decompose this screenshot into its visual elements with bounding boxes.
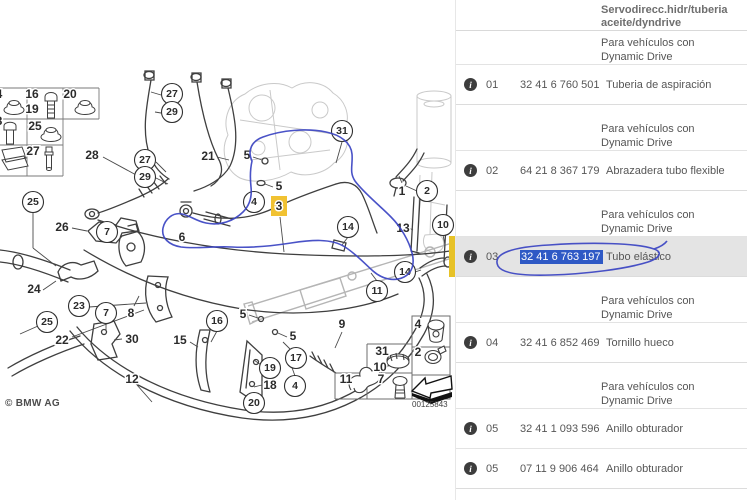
svg-text:29: 29 [139,171,151,183]
svg-text:20: 20 [63,87,77,101]
callout-25: 25 [28,119,42,133]
svg-text:19: 19 [25,102,39,116]
callout-4: 4 [415,317,422,331]
callout-8[interactable]: 8 [128,306,135,320]
svg-text:11: 11 [371,285,382,297]
part-description: Anillo obturador [606,463,747,475]
callout-26[interactable]: 26 [55,220,69,234]
callout-24[interactable]: 24 [27,282,41,296]
part-description: Tubo elástico [606,251,747,263]
callout-1[interactable]: 1 [399,184,406,198]
callout-16: 16 [25,87,39,101]
bmw-copyright: © BMW AG [5,398,60,409]
svg-text:11: 11 [340,372,353,386]
svg-text:15: 15 [173,333,187,347]
svg-text:24: 24 [27,282,41,296]
svg-text:27: 27 [166,88,178,100]
svg-text:8: 8 [128,306,135,320]
svg-text:5: 5 [290,329,297,343]
svg-text:3: 3 [276,199,283,213]
svg-text:25: 25 [41,316,53,328]
svg-text:17: 17 [290,352,302,364]
position-number: 04 [478,337,520,349]
svg-text:18: 18 [263,378,277,392]
info-icon[interactable]: i [464,422,477,435]
part-description: Abrazadera tubo flexible [606,165,747,177]
availability-note: Para vehículos conDynamic Drive [456,289,747,323]
info-icon[interactable]: i [464,250,477,263]
part-row[interactable]: i0507 11 9 906 464Anillo obturador [456,448,747,488]
svg-text:8: 8 [0,114,3,128]
svg-text:19: 19 [264,362,276,374]
parts-table: Servodirecc.hidr/tuberia aceite/dyndrive… [455,0,747,500]
position-number: 05 [478,463,520,475]
svg-text:12: 12 [125,372,139,386]
parts-catalog-page: 2729272931282155431226762514131024232522… [0,0,747,500]
callout-2[interactable]: 2 [417,181,438,202]
part-number[interactable]: 32 41 6 760 501 [520,79,606,91]
svg-text:7: 7 [378,372,385,386]
svg-text:23: 23 [73,300,85,312]
part-description: Anillo obturador [606,423,747,435]
parts-grid-icons [2,93,95,171]
position-number: 02 [478,165,520,177]
svg-text:28: 28 [85,148,99,162]
callout-16[interactable]: 16 [207,311,228,332]
part-number[interactable]: 32 41 6 763 197 [520,251,606,263]
info-icon[interactable]: i [464,164,477,177]
callout-17[interactable]: 17 [286,348,307,369]
callout-31: 31 [375,344,389,358]
svg-text:10: 10 [437,219,449,231]
svg-text:25: 25 [27,196,39,208]
svg-text:29: 29 [166,106,178,118]
callout-21[interactable]: 21 [201,149,215,163]
part-number[interactable]: 64 21 8 367 179 [520,165,606,177]
position-number: 03 [478,251,520,263]
callout-22[interactable]: 22 [55,333,69,347]
callout-3[interactable]: 3 [271,196,287,216]
callout-5[interactable]: 5 [240,307,247,321]
callout-12[interactable]: 12 [125,372,139,386]
part-number[interactable]: 07 11 9 906 464 [520,463,606,475]
part-row[interactable]: i0332 41 6 763 197Tubo elástico [456,237,747,276]
callout-20: 20 [63,87,77,101]
callout-5[interactable]: 5 [276,179,283,193]
position-number: 05 [478,423,520,435]
svg-text:2: 2 [415,345,422,359]
svg-text:5: 5 [240,307,247,321]
part-description: Tuberia de aspiración [606,79,747,91]
availability-note: Para vehículos conDynamic Drive [456,375,747,409]
part-description: Tornillo hueco [606,337,747,349]
diagram-canvas: 2729272931282155431226762514131024232522… [0,0,455,500]
svg-text:4: 4 [0,87,3,101]
callout-25[interactable]: 25 [23,192,44,213]
part-row[interactable]: i0264 21 8 367 179Abrazadera tubo flexib… [456,151,747,190]
part-row[interactable]: i0432 41 6 852 469Tornillo hueco [456,323,747,362]
svg-text:6: 6 [179,230,186,244]
svg-text:7: 7 [104,226,110,238]
svg-text:27: 27 [139,154,151,166]
svg-text:21: 21 [201,149,215,163]
part-number[interactable]: 32 41 1 093 596 [520,423,606,435]
svg-text:16: 16 [211,315,223,327]
svg-text:16: 16 [25,87,39,101]
svg-text:4: 4 [292,380,298,392]
callout-27: 27 [26,144,40,158]
callout-29[interactable]: 29 [135,167,156,188]
position-number: 01 [478,79,520,91]
svg-text:25: 25 [28,119,42,133]
parts-section: Para vehículos conDynamic Drivei0432 41 … [456,289,747,363]
callout-11[interactable]: 11 [367,281,388,302]
svg-text:4: 4 [415,317,422,331]
svg-text:22: 22 [55,333,69,347]
callout-14[interactable]: 14 [338,217,359,238]
svg-text:20: 20 [248,397,260,409]
callout-15[interactable]: 15 [173,333,187,347]
svg-text:9: 9 [339,317,346,331]
part-row[interactable]: i0532 41 1 093 596Anillo obturador [456,409,747,448]
selected-part-number[interactable]: 32 41 6 763 197 [520,250,603,264]
parts-section: Para vehículos conDynamic Drivei0332 41 … [456,203,747,277]
svg-text:27: 27 [26,144,40,158]
parts-diagram: 2729272931282155431226762514131024232522… [0,0,455,500]
availability-note: Para vehículos conDynamic Drive [456,117,747,151]
callout-6[interactable]: 6 [179,230,186,244]
svg-text:26: 26 [55,220,69,234]
svg-text:2: 2 [424,185,430,197]
svg-text:31: 31 [375,344,389,358]
callout-20[interactable]: 20 [244,393,265,414]
parts-section: Para vehículos conDynamic Drivei0532 41 … [456,375,747,489]
callout-19[interactable]: 19 [260,358,281,379]
parts-section: Para vehículos conDynamic Drivei0264 21 … [456,117,747,191]
drawing-number: 00125843 [412,400,448,409]
availability-note: Para vehículos conDynamic Drive [456,31,747,65]
blue-ink-annotation [163,130,413,279]
info-icon[interactable]: i [464,336,477,349]
callout-2: 2 [415,345,422,359]
svg-text:30: 30 [125,332,139,346]
parts-section: Para vehículos conDynamic Drivei0132 41 … [456,31,747,105]
callout-23[interactable]: 23 [69,296,90,317]
callout-7[interactable]: 7 [96,303,117,324]
info-icon[interactable]: i [464,462,477,475]
availability-note: Para vehículos conDynamic Drive [456,203,747,237]
callout-10[interactable]: 10 [433,215,454,236]
callout-28[interactable]: 28 [85,148,99,162]
parts-table-sections: Para vehículos conDynamic Drivei0132 41 … [456,31,747,489]
svg-text:7: 7 [103,307,109,319]
callout-18[interactable]: 18 [263,378,277,392]
callout-30[interactable]: 30 [125,332,139,346]
svg-text:4: 4 [251,196,257,208]
callout-25[interactable]: 25 [37,312,58,333]
part-row[interactable]: i0132 41 6 760 501Tuberia de aspiración [456,65,747,104]
callout-19: 19 [25,102,39,116]
callout-29[interactable]: 29 [162,102,183,123]
svg-text:14: 14 [342,221,354,233]
svg-text:5: 5 [276,179,283,193]
callout-8: 8 [0,114,3,128]
part-number[interactable]: 32 41 6 852 469 [520,337,606,349]
callout-4: 4 [0,87,3,101]
parts-group-title: Servodirecc.hidr/tuberia aceite/dyndrive [456,0,747,31]
callout-4[interactable]: 4 [285,376,306,397]
callout-7[interactable]: 7 [97,222,118,243]
callout-7: 7 [378,372,385,386]
callout-4[interactable]: 4 [244,192,265,213]
info-icon[interactable]: i [464,78,477,91]
callout-9[interactable]: 9 [339,317,346,331]
callout-5[interactable]: 5 [290,329,297,343]
callout-11: 11 [340,372,353,386]
svg-text:1: 1 [399,184,406,198]
